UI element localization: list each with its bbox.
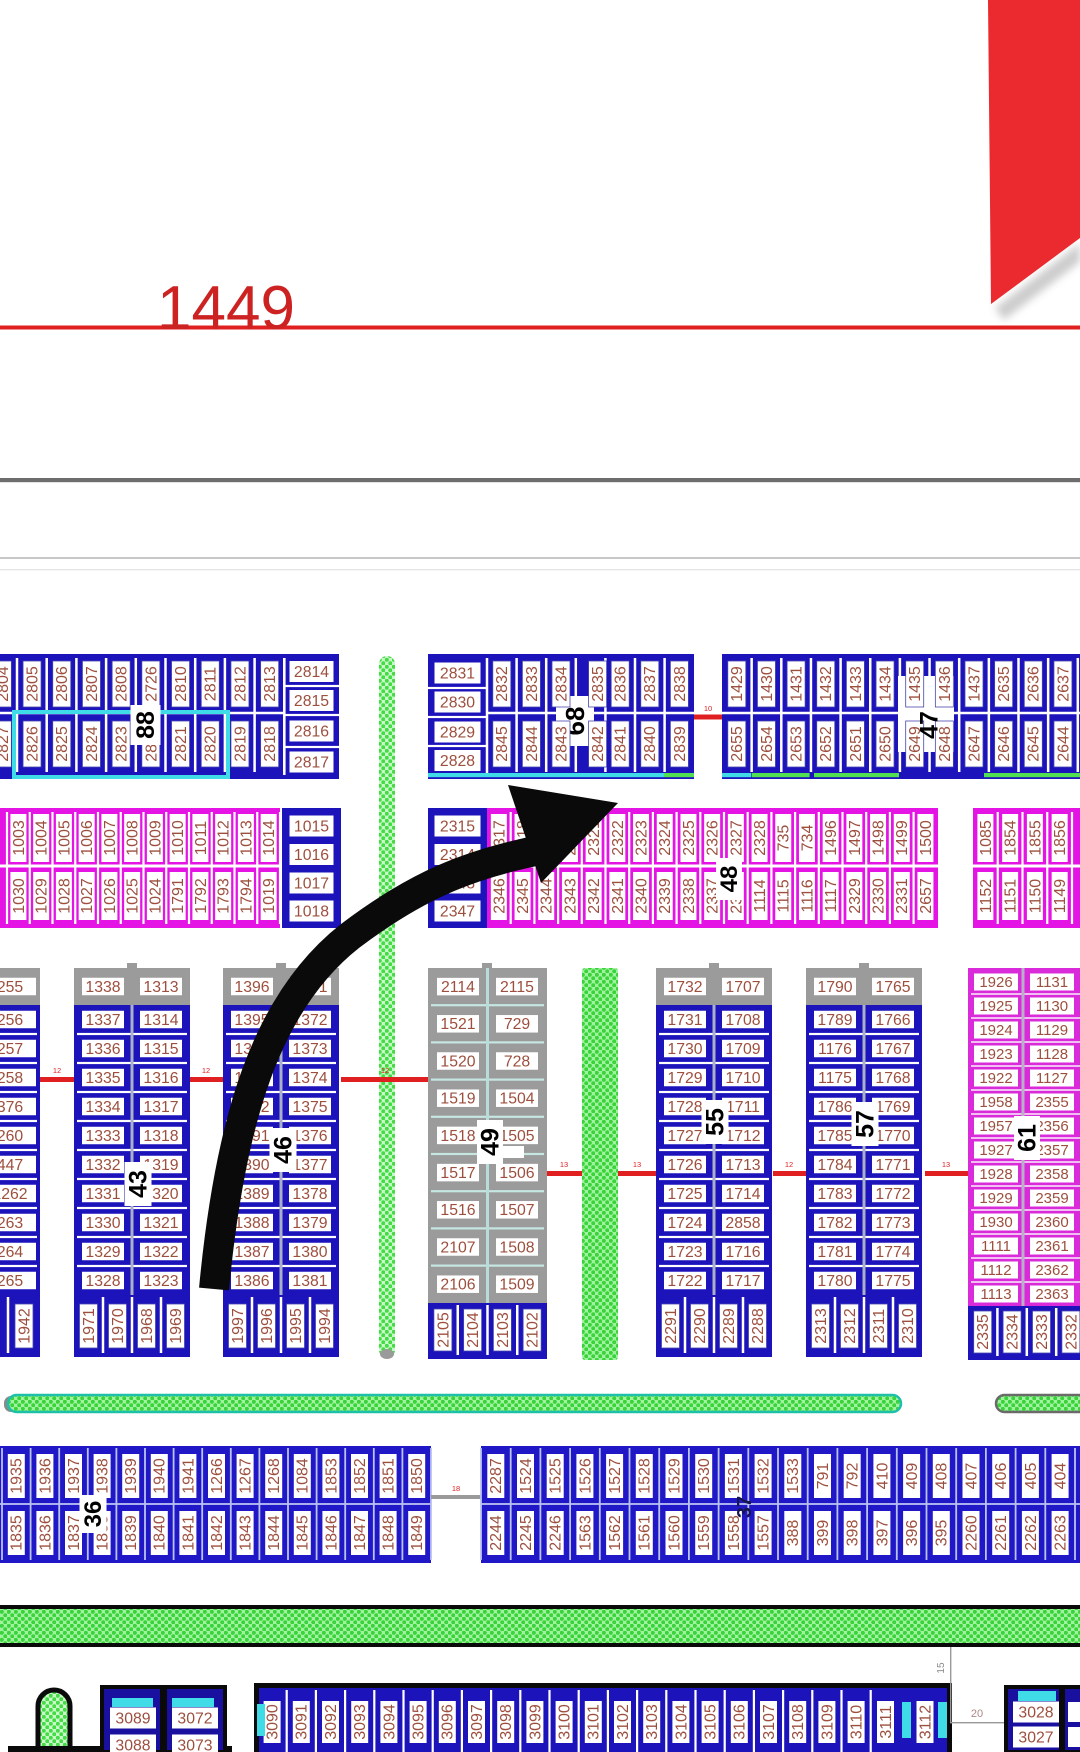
svg-text:2332: 2332 (1063, 1314, 1080, 1350)
svg-text:2817: 2817 (294, 754, 329, 771)
svg-text:1315: 1315 (143, 1041, 178, 1058)
svg-text:1516: 1516 (440, 1202, 475, 1219)
svg-text:2263: 2263 (1053, 1515, 1070, 1551)
svg-text:1841: 1841 (180, 1515, 197, 1551)
svg-text:2327: 2327 (728, 820, 745, 856)
svg-text:1717: 1717 (725, 1273, 760, 1290)
svg-text:1330: 1330 (85, 1215, 120, 1232)
svg-text:3101: 3101 (586, 1704, 603, 1740)
svg-text:2106: 2106 (440, 1277, 475, 1294)
svg-text:1792: 1792 (193, 878, 210, 914)
svg-text:2841: 2841 (613, 726, 630, 762)
svg-text:2653: 2653 (789, 726, 806, 762)
svg-text:2834: 2834 (553, 666, 570, 702)
svg-text:1727: 1727 (667, 1128, 702, 1145)
svg-text:256: 256 (0, 1012, 23, 1029)
svg-text:1730: 1730 (667, 1041, 702, 1058)
svg-text:3072: 3072 (177, 1710, 212, 1727)
svg-text:2311: 2311 (871, 1309, 888, 1344)
svg-text:1526: 1526 (577, 1458, 594, 1494)
svg-text:2824: 2824 (84, 726, 101, 762)
svg-text:1388: 1388 (234, 1215, 269, 1232)
svg-text:2344: 2344 (539, 878, 556, 914)
svg-text:2335: 2335 (975, 1314, 992, 1350)
svg-text:1504: 1504 (499, 1091, 534, 1108)
svg-text:1957: 1957 (979, 1118, 1012, 1135)
svg-text:1525: 1525 (548, 1458, 565, 1494)
svg-text:3073: 3073 (177, 1737, 212, 1752)
svg-text:1769: 1769 (875, 1099, 910, 1116)
svg-text:3106: 3106 (732, 1704, 749, 1740)
svg-text:3088: 3088 (115, 1737, 150, 1752)
svg-text:1941: 1941 (180, 1458, 197, 1494)
svg-text:1262: 1262 (0, 1186, 28, 1203)
svg-text:1323: 1323 (143, 1273, 178, 1290)
svg-text:1847: 1847 (352, 1515, 369, 1551)
svg-text:1433: 1433 (848, 666, 865, 702)
svg-text:1845: 1845 (295, 1515, 312, 1551)
svg-text:2807: 2807 (84, 666, 101, 702)
svg-text:3099: 3099 (527, 1704, 544, 1740)
svg-text:12: 12 (785, 1160, 793, 1169)
svg-text:1562: 1562 (607, 1515, 624, 1551)
svg-text:1923: 1923 (979, 1046, 1012, 1063)
svg-text:1149: 1149 (1052, 879, 1069, 914)
svg-text:1844: 1844 (266, 1515, 283, 1551)
svg-text:2636: 2636 (1026, 666, 1043, 702)
svg-text:1766: 1766 (875, 1012, 910, 1029)
svg-text:1533: 1533 (785, 1458, 802, 1494)
svg-text:12: 12 (381, 1066, 389, 1075)
svg-text:2842: 2842 (590, 726, 607, 762)
svg-text:1707: 1707 (725, 979, 760, 996)
svg-text:1849: 1849 (409, 1515, 426, 1551)
svg-text:1927: 1927 (979, 1142, 1012, 1159)
svg-text:2637: 2637 (1055, 666, 1072, 702)
svg-text:2287: 2287 (488, 1458, 505, 1494)
svg-text:396: 396 (904, 1520, 921, 1547)
svg-text:1731: 1731 (667, 1012, 702, 1029)
svg-text:10: 10 (704, 704, 712, 713)
svg-text:1117: 1117 (823, 879, 840, 912)
svg-text:2651: 2651 (848, 726, 865, 762)
svg-text:257: 257 (0, 1041, 23, 1058)
svg-text:1840: 1840 (152, 1515, 169, 1551)
svg-text:1785: 1785 (817, 1128, 852, 1145)
svg-text:1929: 1929 (979, 1190, 1012, 1207)
svg-text:2819: 2819 (232, 726, 249, 762)
svg-text:1013: 1013 (238, 820, 255, 856)
svg-text:1379: 1379 (292, 1215, 327, 1232)
svg-text:1128: 1128 (1036, 1046, 1068, 1063)
svg-text:1997: 1997 (230, 1308, 247, 1344)
svg-text:2290: 2290 (692, 1308, 709, 1344)
svg-text:2326: 2326 (705, 820, 722, 856)
svg-text:2635: 2635 (996, 666, 1013, 702)
svg-text:88: 88 (132, 711, 160, 739)
svg-text:1374: 1374 (292, 1070, 327, 1087)
svg-text:37: 37 (734, 1496, 756, 1518)
svg-text:3103: 3103 (644, 1704, 661, 1740)
svg-text:1018: 1018 (294, 903, 329, 920)
svg-text:2338: 2338 (681, 878, 698, 914)
svg-text:1085: 1085 (978, 820, 995, 856)
svg-text:43: 43 (125, 1170, 153, 1198)
svg-text:1114: 1114 (752, 879, 769, 912)
svg-text:3102: 3102 (615, 1704, 632, 1740)
svg-text:1971: 1971 (81, 1308, 98, 1344)
svg-text:399: 399 (815, 1520, 832, 1547)
svg-text:2657: 2657 (918, 878, 935, 914)
svg-text:2815: 2815 (294, 693, 329, 710)
svg-text:1432: 1432 (818, 666, 835, 702)
svg-text:1937: 1937 (66, 1458, 83, 1494)
svg-text:1375: 1375 (292, 1099, 327, 1116)
svg-text:1007: 1007 (102, 820, 119, 856)
svg-text:1713: 1713 (725, 1157, 760, 1174)
svg-text:1016: 1016 (294, 847, 329, 864)
svg-text:1781: 1781 (817, 1244, 852, 1261)
svg-text:1774: 1774 (875, 1244, 910, 1261)
svg-text:2828: 2828 (440, 753, 475, 770)
svg-text:263: 263 (0, 1215, 23, 1232)
svg-text:1381: 1381 (292, 1273, 327, 1290)
svg-text:1130: 1130 (1036, 998, 1068, 1015)
svg-text:2845: 2845 (494, 726, 511, 762)
svg-text:2260: 2260 (963, 1515, 980, 1551)
svg-text:2329: 2329 (847, 878, 864, 914)
svg-text:1373: 1373 (292, 1041, 327, 1058)
svg-text:1563: 1563 (577, 1515, 594, 1551)
svg-text:2325: 2325 (681, 820, 698, 856)
svg-text:1835: 1835 (9, 1515, 26, 1551)
svg-text:2808: 2808 (114, 666, 131, 702)
svg-text:2836: 2836 (613, 666, 630, 702)
svg-text:1732: 1732 (667, 979, 702, 996)
svg-text:1709: 1709 (725, 1041, 760, 1058)
svg-text:734: 734 (799, 825, 816, 852)
svg-text:2644: 2644 (1055, 726, 1072, 762)
svg-text:1528: 1528 (637, 1458, 654, 1494)
svg-text:1509: 1509 (499, 1277, 534, 1294)
svg-text:1378: 1378 (292, 1186, 327, 1203)
svg-text:1499: 1499 (894, 820, 911, 856)
svg-text:2818: 2818 (262, 726, 279, 762)
svg-text:1710: 1710 (725, 1070, 760, 1087)
svg-text:1772: 1772 (875, 1186, 910, 1203)
svg-text:2813: 2813 (262, 666, 279, 702)
svg-text:398: 398 (845, 1520, 862, 1547)
svg-text:1930: 1930 (979, 1214, 1012, 1231)
svg-text:2361: 2361 (1035, 1238, 1068, 1255)
svg-text:12: 12 (202, 1066, 210, 1075)
svg-text:2343: 2343 (562, 878, 579, 914)
svg-text:1015: 1015 (294, 818, 329, 835)
svg-text:2359: 2359 (1035, 1190, 1068, 1207)
svg-text:61: 61 (1014, 1124, 1042, 1152)
svg-text:1332: 1332 (85, 1157, 120, 1174)
svg-text:2825: 2825 (54, 726, 71, 762)
svg-text:2246: 2246 (548, 1515, 565, 1551)
svg-text:2844: 2844 (524, 726, 541, 762)
svg-text:1387: 1387 (234, 1244, 269, 1261)
svg-text:1012: 1012 (216, 820, 233, 856)
svg-text:2843: 2843 (553, 726, 570, 762)
svg-text:3090: 3090 (265, 1704, 282, 1740)
svg-text:1791: 1791 (170, 878, 187, 914)
svg-text:1505: 1505 (499, 1128, 534, 1145)
svg-text:1027: 1027 (79, 878, 96, 914)
svg-text:2362: 2362 (1035, 1262, 1068, 1279)
svg-text:36: 36 (80, 1501, 107, 1528)
svg-text:1994: 1994 (317, 1308, 334, 1344)
svg-text:1940: 1940 (152, 1458, 169, 1494)
svg-text:1316: 1316 (143, 1070, 178, 1087)
svg-text:1789: 1789 (817, 1012, 852, 1029)
svg-text:1839: 1839 (123, 1515, 140, 1551)
svg-text:1926: 1926 (979, 974, 1012, 991)
svg-text:1848: 1848 (381, 1515, 398, 1551)
svg-text:49: 49 (477, 1128, 505, 1156)
svg-text:2244: 2244 (488, 1515, 505, 1551)
svg-text:1722: 1722 (667, 1273, 702, 1290)
svg-text:3092: 3092 (323, 1704, 340, 1740)
svg-text:791: 791 (815, 1463, 832, 1490)
svg-text:1434: 1434 (877, 666, 894, 702)
svg-text:1723: 1723 (667, 1244, 702, 1261)
svg-text:20: 20 (971, 1708, 983, 1720)
svg-text:2322: 2322 (610, 820, 627, 856)
svg-text:18: 18 (452, 1484, 460, 1493)
svg-text:1506: 1506 (499, 1165, 534, 1182)
svg-text:1376: 1376 (292, 1128, 327, 1145)
svg-text:1714: 1714 (725, 1186, 760, 1203)
svg-text:1508: 1508 (499, 1239, 534, 1256)
svg-text:1517: 1517 (440, 1165, 475, 1182)
svg-text:1771: 1771 (875, 1157, 910, 1174)
svg-text:1127: 1127 (1036, 1070, 1068, 1087)
svg-text:2262: 2262 (1023, 1515, 1040, 1551)
svg-text:2288: 2288 (750, 1308, 767, 1344)
svg-text:1708: 1708 (725, 1012, 760, 1029)
svg-text:1558: 1558 (726, 1515, 743, 1551)
svg-text:3095: 3095 (411, 1704, 428, 1740)
svg-text:1386: 1386 (234, 1273, 269, 1290)
svg-text:1498: 1498 (870, 820, 887, 856)
svg-text:2102: 2102 (525, 1312, 542, 1348)
svg-text:1518: 1518 (440, 1128, 475, 1145)
svg-text:2810: 2810 (173, 666, 190, 702)
svg-text:46: 46 (270, 1136, 298, 1164)
svg-text:407: 407 (963, 1463, 980, 1490)
svg-text:1006: 1006 (79, 820, 96, 856)
svg-text:1084: 1084 (295, 1458, 312, 1494)
svg-text:1314: 1314 (143, 1012, 178, 1029)
svg-text:1842: 1842 (209, 1515, 226, 1551)
svg-text:1337: 1337 (85, 1012, 120, 1029)
svg-text:1560: 1560 (666, 1515, 683, 1551)
svg-text:1313: 1313 (143, 979, 178, 996)
svg-text:1939: 1939 (123, 1458, 140, 1494)
svg-text:13: 13 (560, 1160, 568, 1169)
svg-text:1318: 1318 (143, 1128, 178, 1145)
svg-text:2346: 2346 (491, 878, 508, 914)
svg-text:2358: 2358 (1035, 1166, 1068, 1183)
svg-text:2115: 2115 (500, 979, 534, 996)
svg-text:2646: 2646 (996, 726, 1013, 762)
svg-text:1333: 1333 (85, 1128, 120, 1145)
svg-text:1112: 1112 (980, 1262, 1011, 1279)
svg-text:2310: 2310 (900, 1308, 917, 1344)
svg-text:2816: 2816 (294, 723, 329, 740)
svg-text:1725: 1725 (667, 1186, 702, 1203)
svg-text:2820: 2820 (203, 726, 220, 762)
svg-text:3094: 3094 (381, 1704, 398, 1740)
svg-text:1836: 1836 (37, 1515, 54, 1551)
svg-text:1786: 1786 (817, 1099, 852, 1116)
svg-text:1008: 1008 (125, 820, 142, 856)
svg-text:1025: 1025 (125, 878, 142, 914)
svg-text:1995: 1995 (288, 1308, 305, 1344)
svg-text:13: 13 (942, 1160, 950, 1169)
svg-text:1958: 1958 (979, 1094, 1012, 1111)
svg-text:1009: 1009 (147, 820, 164, 856)
svg-text:1030: 1030 (11, 878, 28, 914)
svg-text:1328: 1328 (85, 1273, 120, 1290)
svg-text:2833: 2833 (524, 666, 541, 702)
svg-text:2107: 2107 (440, 1239, 475, 1256)
svg-text:1854: 1854 (1003, 820, 1020, 856)
svg-text:1004: 1004 (34, 820, 51, 856)
svg-text:2650: 2650 (877, 726, 894, 762)
svg-text:1496: 1496 (823, 820, 840, 856)
svg-text:2832: 2832 (494, 666, 511, 702)
svg-text:2652: 2652 (818, 726, 835, 762)
svg-text:3028: 3028 (1018, 1704, 1053, 1721)
svg-text:2821: 2821 (173, 726, 190, 762)
svg-text:3100: 3100 (557, 1704, 574, 1740)
svg-text:1770: 1770 (875, 1128, 910, 1145)
svg-text:2647: 2647 (966, 726, 983, 762)
svg-text:13: 13 (633, 1160, 641, 1169)
svg-text:3027: 3027 (1018, 1729, 1053, 1746)
svg-text:395: 395 (934, 1520, 951, 1547)
svg-text:265: 265 (0, 1273, 23, 1290)
svg-text:2341: 2341 (610, 878, 627, 914)
svg-text:1521: 1521 (440, 1016, 475, 1033)
svg-text:1530: 1530 (696, 1458, 713, 1494)
svg-text:1942: 1942 (16, 1308, 33, 1344)
svg-text:3097: 3097 (469, 1704, 486, 1740)
svg-text:2105: 2105 (435, 1312, 452, 1348)
svg-text:404: 404 (1053, 1463, 1070, 1490)
svg-text:255: 255 (0, 979, 23, 996)
svg-text:2858: 2858 (725, 1215, 760, 1232)
svg-text:1852: 1852 (352, 1458, 369, 1494)
svg-text:1334: 1334 (85, 1099, 120, 1116)
svg-text:1775: 1775 (875, 1273, 910, 1290)
svg-text:2654: 2654 (759, 726, 776, 762)
svg-text:2342: 2342 (586, 878, 603, 914)
svg-text:2104: 2104 (465, 1312, 482, 1348)
svg-text:1396: 1396 (234, 979, 269, 996)
svg-text:1790: 1790 (817, 979, 852, 996)
svg-text:2839: 2839 (672, 726, 689, 762)
svg-text:1429: 1429 (729, 666, 746, 702)
svg-text:1014: 1014 (261, 820, 278, 856)
svg-text:1767: 1767 (875, 1041, 910, 1058)
svg-text:12: 12 (53, 1066, 61, 1075)
svg-text:2811: 2811 (203, 667, 220, 702)
svg-text:1557: 1557 (756, 1515, 773, 1551)
svg-text:2114: 2114 (441, 979, 475, 996)
svg-text:2812: 2812 (232, 666, 249, 702)
svg-text:1968: 1968 (139, 1308, 156, 1344)
svg-text:1527: 1527 (607, 1458, 624, 1494)
svg-text:1026: 1026 (102, 878, 119, 914)
svg-text:3109: 3109 (819, 1704, 836, 1740)
svg-text:1029: 1029 (34, 878, 51, 914)
svg-text:3104: 3104 (673, 1704, 690, 1740)
svg-text:1561: 1561 (637, 1515, 654, 1551)
svg-text:388: 388 (785, 1520, 802, 1547)
svg-text:1507: 1507 (499, 1202, 534, 1219)
svg-text:2363: 2363 (1035, 1286, 1068, 1303)
svg-text:2355: 2355 (1035, 1094, 1068, 1111)
svg-text:2826: 2826 (24, 726, 41, 762)
svg-text:1856: 1856 (1052, 820, 1069, 856)
svg-text:2289: 2289 (721, 1308, 738, 1344)
svg-text:1529: 1529 (666, 1458, 683, 1494)
svg-text:3091: 3091 (294, 1704, 311, 1740)
svg-text:1003: 1003 (11, 820, 28, 856)
svg-text:3110: 3110 (849, 1705, 866, 1740)
svg-text:3107: 3107 (761, 1704, 778, 1740)
svg-text:376: 376 (0, 1099, 23, 1116)
svg-text:735: 735 (776, 825, 793, 852)
svg-text:1935: 1935 (9, 1458, 26, 1494)
svg-text:1532: 1532 (756, 1458, 773, 1494)
svg-text:729: 729 (504, 1016, 531, 1033)
svg-text:1176: 1176 (818, 1041, 852, 1058)
svg-text:2837: 2837 (642, 666, 659, 702)
svg-text:410: 410 (874, 1463, 891, 1490)
svg-text:2330: 2330 (870, 878, 887, 914)
svg-text:2655: 2655 (729, 726, 746, 762)
svg-text:1175: 1175 (818, 1070, 852, 1087)
svg-text:1500: 1500 (918, 820, 935, 856)
svg-text:792: 792 (845, 1463, 862, 1490)
svg-text:1938: 1938 (95, 1458, 112, 1494)
svg-text:1151: 1151 (1003, 879, 1020, 914)
svg-text:1773: 1773 (875, 1215, 910, 1232)
svg-text:1435: 1435 (907, 666, 924, 702)
svg-text:1724: 1724 (667, 1215, 702, 1232)
svg-text:2360: 2360 (1035, 1214, 1068, 1231)
svg-text:1266: 1266 (209, 1458, 226, 1494)
svg-text:3112: 3112 (917, 1705, 934, 1740)
svg-text:405: 405 (1023, 1463, 1040, 1490)
svg-text:2840: 2840 (642, 726, 659, 762)
svg-text:1019: 1019 (261, 878, 278, 914)
svg-text:1853: 1853 (323, 1458, 340, 1494)
svg-text:2827: 2827 (0, 726, 12, 762)
svg-text:2835: 2835 (590, 666, 607, 702)
svg-text:1922: 1922 (979, 1070, 1012, 1087)
svg-text:1011: 1011 (193, 821, 210, 856)
svg-text:1768: 1768 (875, 1070, 910, 1087)
svg-text:2830: 2830 (440, 694, 475, 711)
